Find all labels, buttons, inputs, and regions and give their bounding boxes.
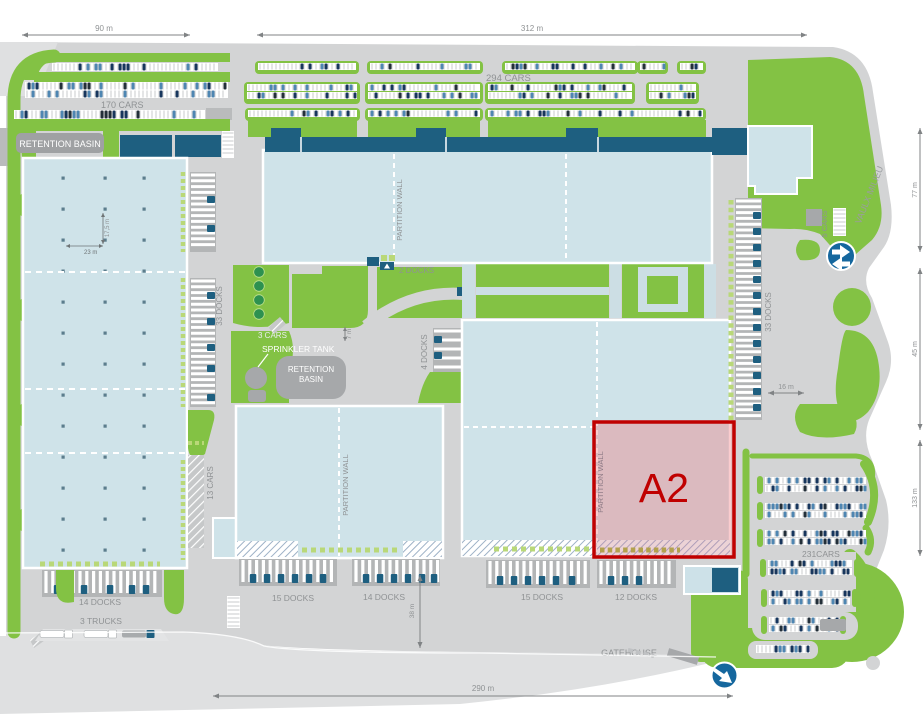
svg-text:16 m: 16 m <box>778 384 794 391</box>
svg-text:90 m: 90 m <box>95 24 113 33</box>
svg-text:170 CARS: 170 CARS <box>101 100 144 110</box>
svg-text:13 CARS: 13 CARS <box>206 466 215 499</box>
svg-text:133 m: 133 m <box>912 488 919 508</box>
svg-text:15 DOCKS: 15 DOCKS <box>521 592 563 602</box>
svg-text:14 DOCKS: 14 DOCKS <box>363 592 405 602</box>
svg-text:5 CARS: 5 CARS <box>820 210 829 237</box>
svg-text:4 DOCKS: 4 DOCKS <box>420 334 429 369</box>
svg-text:SPRINKLER TANK: SPRINKLER TANK <box>262 344 335 354</box>
svg-text:38 m: 38 m <box>409 604 416 618</box>
svg-text:33 DOCKS: 33 DOCKS <box>764 292 773 332</box>
svg-text:12 DOCKS: 12 DOCKS <box>615 592 657 602</box>
svg-text:PARTITION WALL: PARTITION WALL <box>341 454 350 516</box>
svg-text:A2: A2 <box>639 465 689 511</box>
svg-text:14 DOCKS: 14 DOCKS <box>79 597 121 607</box>
svg-text:3 TRUCKS: 3 TRUCKS <box>80 616 122 626</box>
svg-text:17,5 m: 17,5 m <box>105 219 111 237</box>
svg-text:231CARS: 231CARS <box>802 549 840 559</box>
svg-text:2 DOCKS: 2 DOCKS <box>399 266 434 275</box>
svg-text:RETENTION BASIN: RETENTION BASIN <box>19 139 101 149</box>
svg-text:33 DOCKS: 33 DOCKS <box>215 286 224 326</box>
svg-text:PARTITION WALL: PARTITION WALL <box>596 451 605 513</box>
svg-text:3 CARS: 3 CARS <box>258 331 287 340</box>
svg-text:RETENTION: RETENTION <box>288 365 334 374</box>
svg-text:BASIN: BASIN <box>299 375 323 384</box>
svg-text:45 m: 45 m <box>912 341 919 357</box>
svg-text:PARTITION WALL: PARTITION WALL <box>395 179 404 241</box>
svg-text:312 m: 312 m <box>521 24 544 33</box>
svg-text:290 m: 290 m <box>472 684 495 693</box>
svg-text:7 m: 7 m <box>346 329 353 340</box>
svg-text:23 m: 23 m <box>84 250 97 256</box>
svg-text:15 DOCKS: 15 DOCKS <box>272 593 314 603</box>
svg-text:77 m: 77 m <box>912 182 919 198</box>
